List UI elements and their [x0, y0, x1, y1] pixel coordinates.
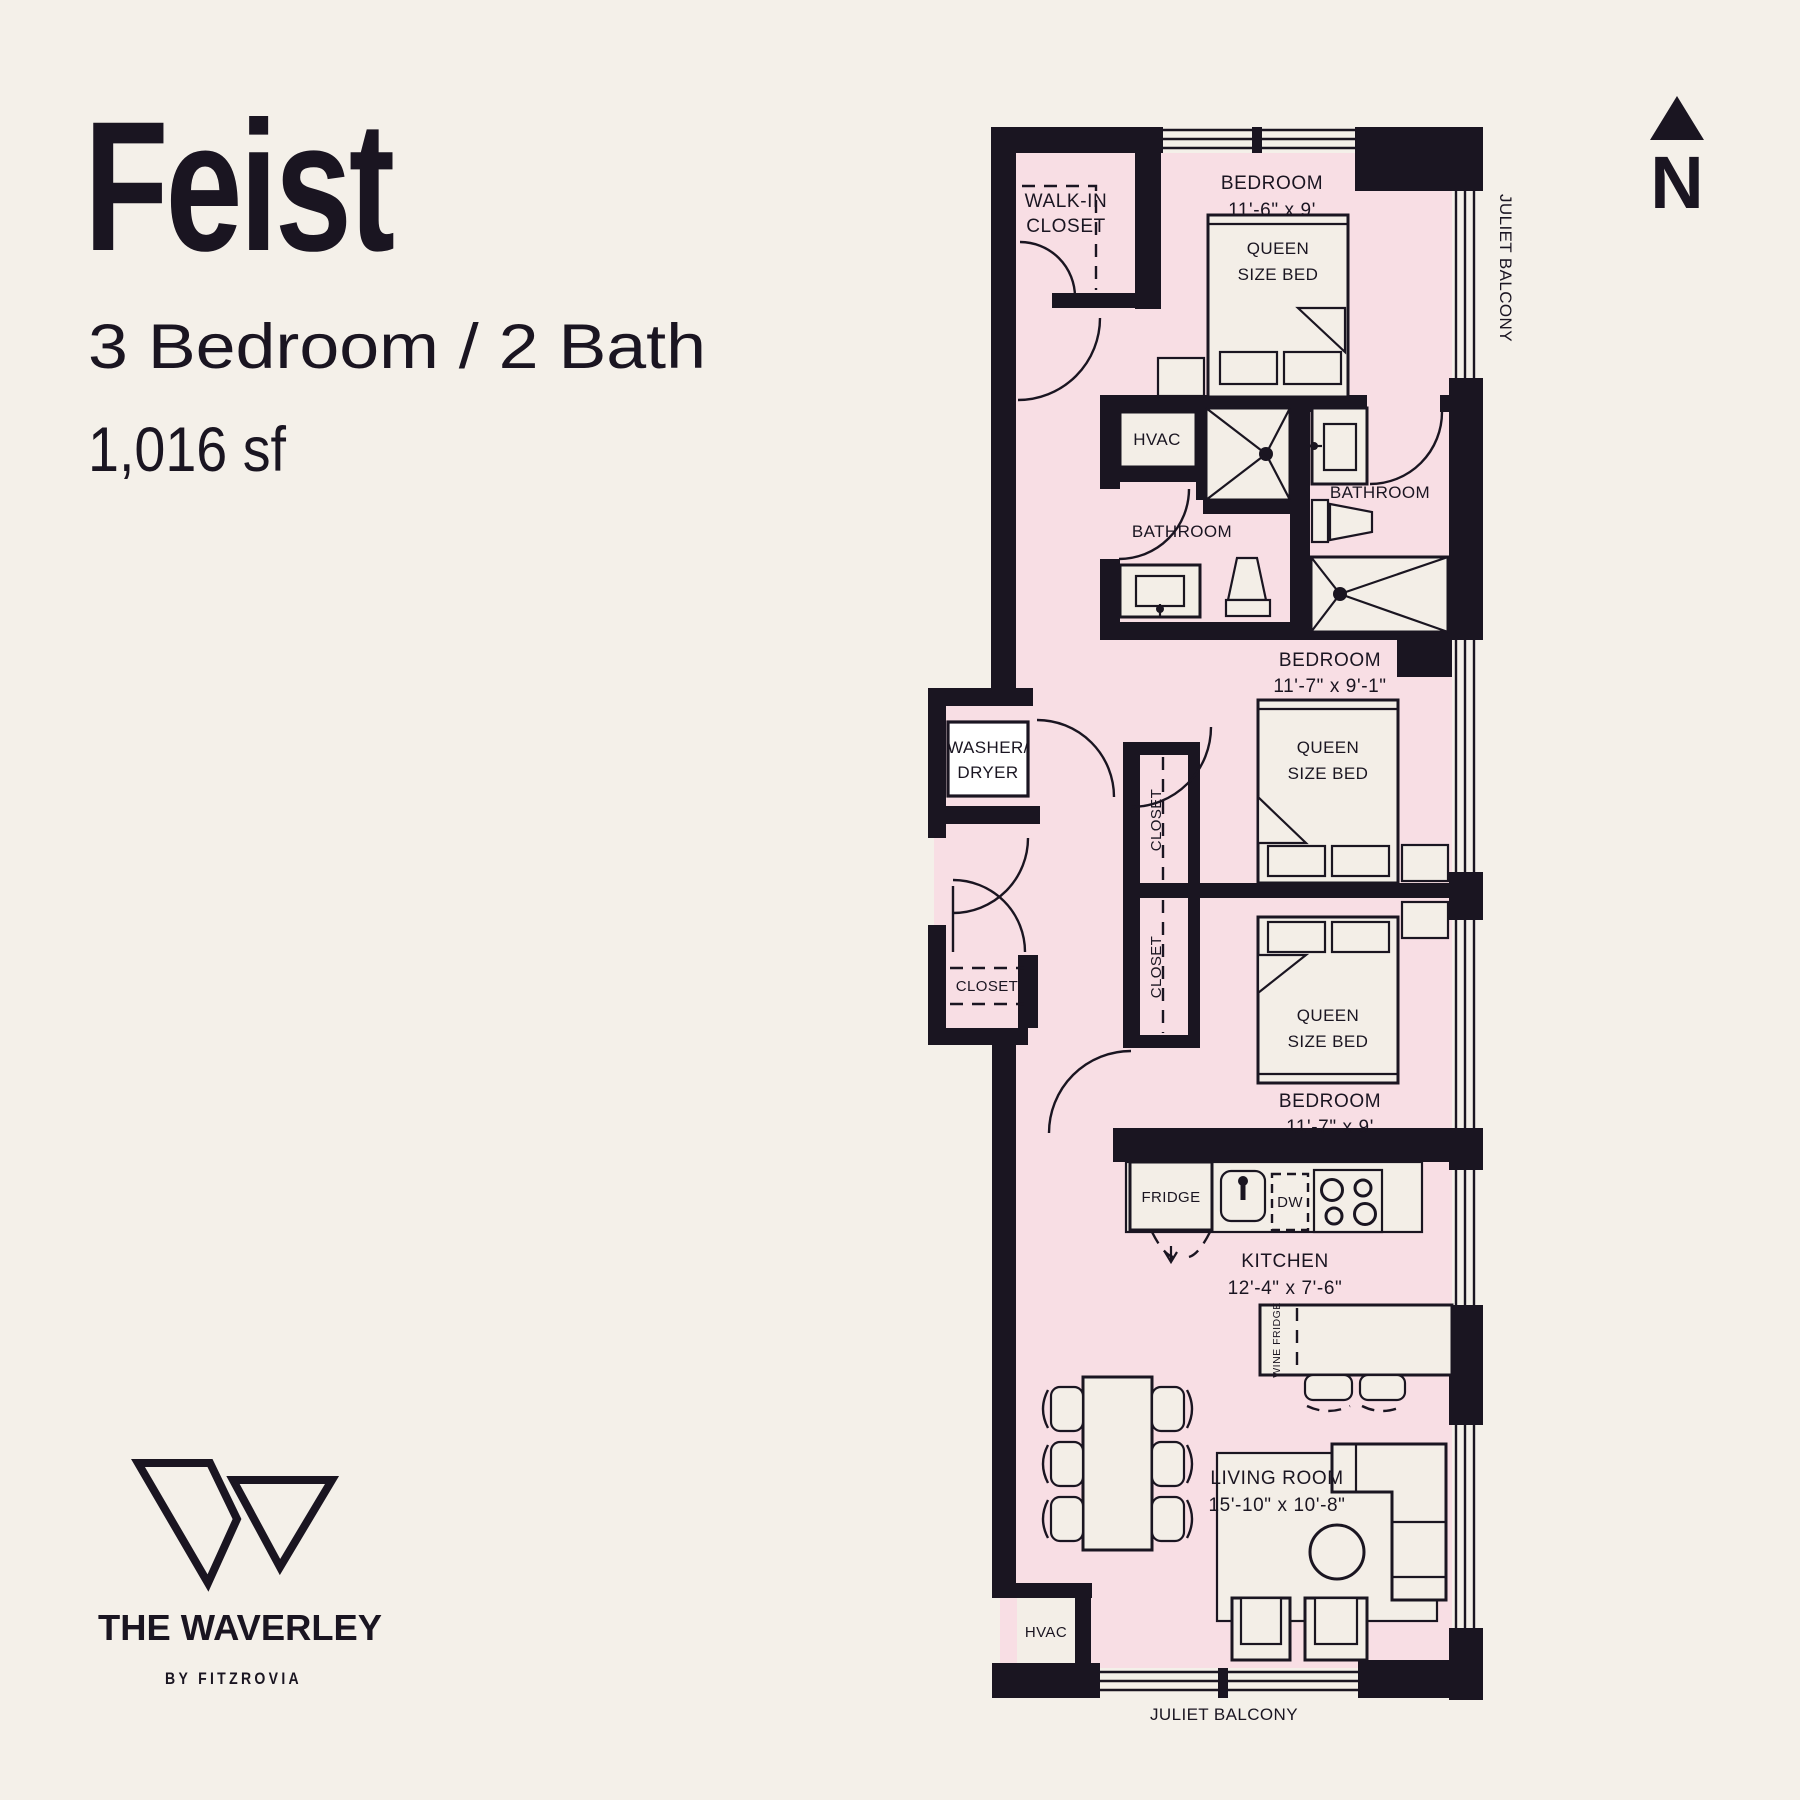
wine-fridge-label: WINE FRIDGE: [1271, 1302, 1283, 1378]
bed1-label: SIZE BED: [1238, 265, 1319, 284]
brand-name: THE WAVERLEY: [98, 1607, 382, 1648]
bathroom1-sink: [1120, 565, 1200, 617]
closet-a-label: CLOSET: [1148, 789, 1165, 851]
shower-1: [1206, 408, 1290, 500]
bedroom2-label: BEDROOM: [1279, 650, 1381, 671]
juliet-balcony-bottom-label: JULIET BALCONY: [1150, 1705, 1298, 1724]
bed-bedroom3: [1258, 917, 1398, 1083]
stove: [1314, 1170, 1382, 1232]
kitchen-dims: 12'-4" x 7'-6": [1228, 1278, 1343, 1299]
entry-closet-label: CLOSET: [956, 978, 1018, 995]
bedroom3-dims: 11'-7" x 9': [1286, 1117, 1374, 1138]
washer-dryer-unit: [948, 722, 1028, 796]
juliet-balcony-right-label: JULIET BALCONY: [1496, 194, 1515, 342]
header: Feist 3 Bedroom / 2 Bath 1,016 sf: [84, 84, 706, 485]
page-title: Feist: [84, 84, 394, 290]
closet-b-label: CLOSET: [1148, 936, 1165, 998]
bathroom2-sink: [1310, 408, 1367, 484]
bathroom2-label: BATHROOM: [1330, 483, 1430, 502]
brand-logo: THE WAVERLEY BY FITZROVIA: [98, 1463, 382, 1688]
unit-area: 1,016 sf: [88, 415, 286, 485]
bedroom2-dims: 11'-7" x 9'-1": [1273, 676, 1386, 697]
armchair: [1305, 1598, 1367, 1660]
washer-dryer-label: DRYER: [957, 763, 1018, 782]
coffee-table: [1310, 1525, 1364, 1579]
walkin-closet-label: CLOSET: [1026, 216, 1106, 237]
hvac-top-label: HVAC: [1133, 430, 1181, 449]
north-arrow-icon: N: [1650, 96, 1704, 224]
brand-byline: BY FITZROVIA: [165, 1669, 302, 1688]
nightstand: [1402, 845, 1448, 881]
dishwasher-label: DW: [1277, 1194, 1303, 1211]
bed-bedroom2: [1258, 700, 1398, 883]
bathroom1-label: BATHROOM: [1132, 522, 1232, 541]
living-room-dims: 15'-10" x 10'-8": [1208, 1495, 1345, 1516]
dining-table: [1083, 1377, 1152, 1550]
nightstand: [1158, 358, 1204, 396]
nightstand: [1402, 902, 1448, 938]
bar-stool: [1360, 1375, 1405, 1400]
kitchen-label: KITCHEN: [1241, 1251, 1329, 1272]
bedroom1-dims: 11'-6" x 9': [1228, 200, 1316, 221]
bed3-label: SIZE BED: [1288, 1032, 1369, 1051]
armchair: [1232, 1598, 1290, 1660]
shower-2: [1311, 557, 1448, 632]
logo-mark-icon: [138, 1463, 237, 1583]
bedroom3-label: BEDROOM: [1279, 1091, 1381, 1112]
bed1-label: QUEEN: [1247, 239, 1309, 258]
living-room-label: LIVING ROOM: [1210, 1468, 1343, 1489]
floorplan-canvas: Feist 3 Bedroom / 2 Bath 1,016 sf N THE …: [0, 0, 1800, 1800]
floorplan-page: Feist 3 Bedroom / 2 Bath 1,016 sf N THE …: [0, 0, 1800, 1800]
washer-dryer-label: WASHER/: [947, 738, 1029, 757]
bed2-label: SIZE BED: [1288, 764, 1369, 783]
bar-stool: [1305, 1375, 1352, 1400]
hvac-bottom-label: HVAC: [1025, 1624, 1067, 1641]
walkin-closet-label: WALK-IN: [1025, 191, 1108, 212]
bed2-label: QUEEN: [1297, 738, 1359, 757]
fridge-label: FRIDGE: [1141, 1189, 1200, 1206]
unit-subtitle: 3 Bedroom / 2 Bath: [88, 312, 706, 382]
north-label: N: [1650, 141, 1703, 224]
dining-set: [1043, 1377, 1192, 1550]
logo-mark-icon: [233, 1480, 332, 1567]
bed3-label: QUEEN: [1297, 1006, 1359, 1025]
bedroom1-label: BEDROOM: [1221, 173, 1323, 194]
